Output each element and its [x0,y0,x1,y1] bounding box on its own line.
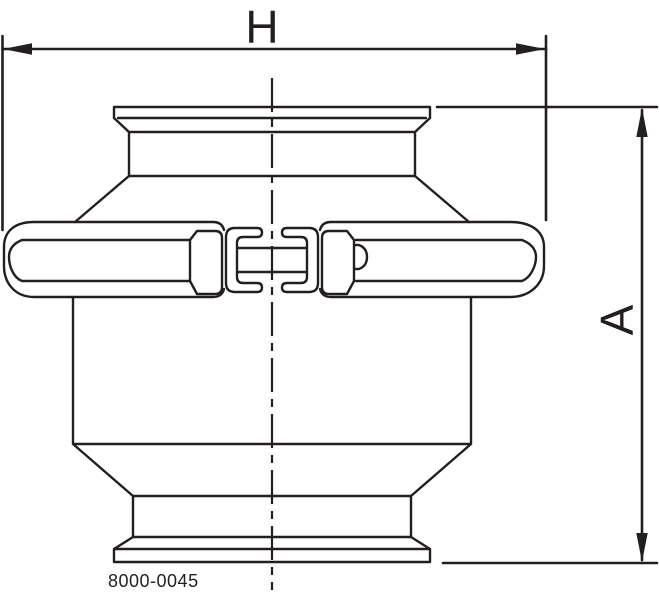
clamp-bolt-stud-tip [354,245,367,269]
h-arrow-left-icon [3,43,32,55]
technical-drawing-canvas: H A 8000-0045 [0,0,660,592]
dimension-a-label: A [591,304,643,335]
clamp-lug-right [282,228,318,292]
linework-group [3,36,658,590]
clamp-nut-block-left [190,231,222,294]
a-arrow-up-icon [636,108,647,137]
valve-drawing-svg: H A 8000-0045 [0,0,660,592]
h-arrow-right-icon [516,43,545,55]
a-arrow-down-icon [636,533,647,562]
part-number: 8000-0045 [108,571,199,591]
clamp-lug-left [226,228,262,292]
clamp-band-right-inner [356,240,536,281]
clamp-band-left-inner [9,240,190,281]
clamp-nut-block-right [322,231,354,294]
dimension-h-label: H [245,1,278,53]
